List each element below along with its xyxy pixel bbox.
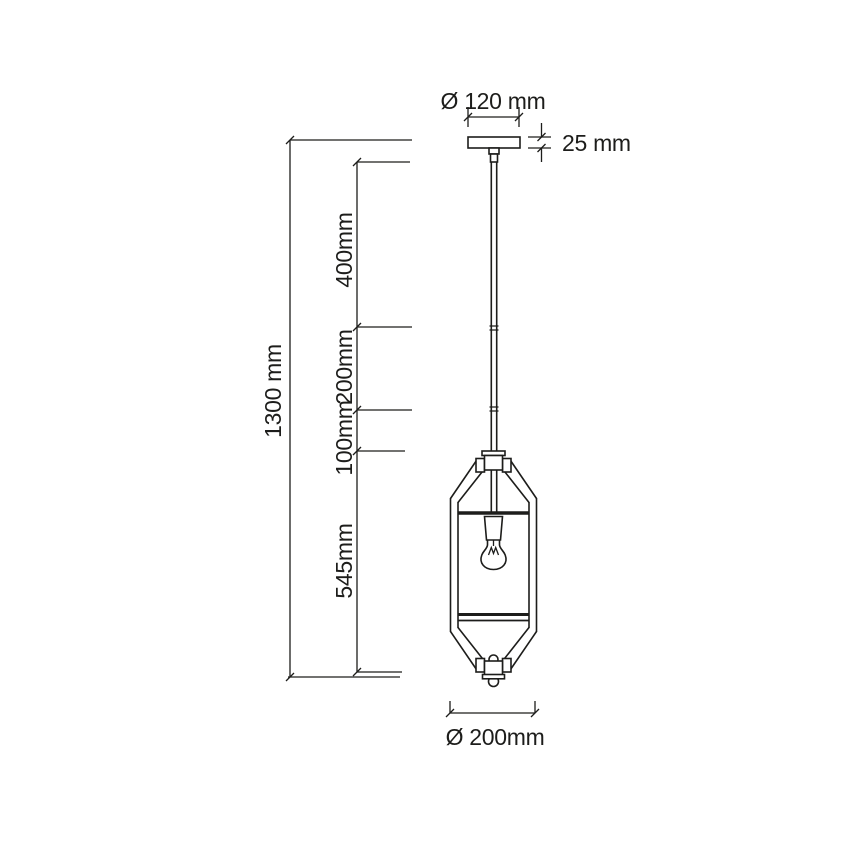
dimension-canopy-diameter: Ø 120 mm: [441, 88, 546, 127]
label-rod-section-top: 400mm: [331, 212, 357, 287]
label-lantern-height: 545mm: [331, 523, 357, 598]
pendant-lamp-drawing: 1300 mm 400mm 200mm 100mm 545mm Ø 120 mm…: [0, 0, 868, 868]
bottom-hub-wing-left: [476, 659, 485, 673]
canopy-nipple-lower: [491, 154, 498, 162]
dimension-rod-sections: 400mm 200mm 100mm 545mm: [331, 158, 412, 676]
label-canopy-height: 25 mm: [562, 130, 631, 156]
label-canopy-diameter: Ø 120 mm: [441, 88, 546, 114]
bottom-finial: [476, 655, 511, 687]
bottom-hub-wing-right: [503, 659, 512, 673]
dimension-canopy-height: 25 mm: [528, 123, 631, 162]
ceiling-canopy: [468, 137, 520, 162]
lantern-frame: [451, 451, 537, 670]
label-total-height: 1300 mm: [260, 344, 286, 438]
bulb-filament: [489, 540, 499, 555]
bottom-hub-lip: [483, 675, 505, 679]
diagram-canvas: 1300 mm 400mm 200mm 100mm 545mm Ø 120 mm…: [0, 0, 868, 868]
top-hub-block: [485, 456, 503, 471]
top-hub-wing-right: [503, 459, 512, 473]
top-hub-wing-left: [476, 459, 485, 473]
canopy-nipple: [489, 148, 499, 154]
label-rod-section-middle: 200mm: [331, 329, 357, 404]
label-lantern-diameter: Ø 200mm: [446, 724, 545, 750]
lamp-socket: [485, 517, 503, 541]
label-rod-section-bottom: 100mm: [331, 400, 357, 475]
dimension-lantern-diameter: Ø 200mm: [446, 701, 545, 750]
light-bulb: [481, 540, 506, 570]
